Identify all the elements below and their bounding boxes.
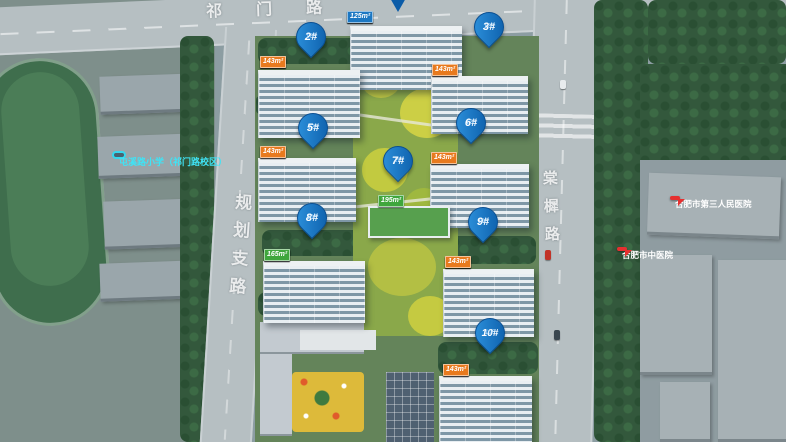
hospital-callout-third-peoples: 合肥市第三人民医院 xyxy=(670,196,680,200)
hospital-building xyxy=(718,260,786,442)
callout-tail xyxy=(625,250,632,257)
tree-strip xyxy=(640,64,786,160)
callout-tail xyxy=(678,199,685,206)
pin-content: 5# 17F xyxy=(299,114,327,142)
building-10 xyxy=(439,376,532,442)
pin-sublabel: 2F xyxy=(394,158,401,165)
crosswalk xyxy=(531,113,596,141)
pin-content: 3# 17F xyxy=(475,13,503,41)
sports-field-infield xyxy=(0,70,91,289)
unit-tag: 143m² xyxy=(432,64,458,76)
kindergarten-courtyard xyxy=(292,372,364,432)
unit-tag: 195m² xyxy=(378,195,404,207)
pin-content: 9# 10F xyxy=(469,208,497,236)
pin-sublabel: 17F xyxy=(466,120,476,127)
building-facade xyxy=(440,381,532,442)
pin-sublabel: 10F xyxy=(478,219,488,226)
unit-tag: 143m² xyxy=(443,364,469,376)
school-callout-text: 屯溪路小学（祁门路校区） xyxy=(119,155,227,168)
building-8 xyxy=(263,261,365,323)
unit-tag: 143m² xyxy=(260,56,286,68)
car xyxy=(560,80,566,89)
pin-sublabel: 10F xyxy=(485,330,495,337)
unit-tag: 143m² xyxy=(445,256,471,268)
building-facade xyxy=(264,266,365,323)
pin-sublabel: 10F xyxy=(307,215,317,222)
pin-content: 2# 17F xyxy=(297,23,325,51)
school-callout: 屯溪路小学（祁门路校区） xyxy=(112,151,126,159)
kindergarten-roof-deck xyxy=(300,330,376,350)
tree-strip xyxy=(648,0,786,64)
pin-1-tail[interactable] xyxy=(390,0,406,12)
pin-sublabel: 17F xyxy=(484,24,494,31)
panel-roof xyxy=(386,372,434,442)
pin-content: 7# 2F xyxy=(384,147,412,175)
unit-tag: 143m² xyxy=(431,152,457,164)
building-7 xyxy=(368,206,450,238)
hospital-building xyxy=(640,255,712,375)
hospital-callout-tcm: 合肥市中医院 xyxy=(617,247,627,251)
site-plan-rendering: 125m² 165m² 195m² 125m² 143m² 125m² 125m… xyxy=(0,0,786,442)
car xyxy=(554,330,560,340)
pin-content: 10# 10F xyxy=(476,319,504,347)
road-label-tangxi-road: 棠樨路 xyxy=(539,170,563,255)
pin-sublabel: 17F xyxy=(306,34,316,41)
kindergarten-wing xyxy=(260,354,292,436)
pin-content: 8# 10F xyxy=(298,204,326,232)
hospital-building xyxy=(660,382,710,442)
unit-tag: 143m² xyxy=(260,146,286,158)
pin-sublabel: 17F xyxy=(308,125,318,132)
unit-tag: 165m² xyxy=(264,249,290,261)
pin-content: 6# 17F xyxy=(457,109,485,137)
park-canopy xyxy=(368,238,436,296)
hospital-callout-text: 合肥市第三人民医院 xyxy=(675,198,752,210)
